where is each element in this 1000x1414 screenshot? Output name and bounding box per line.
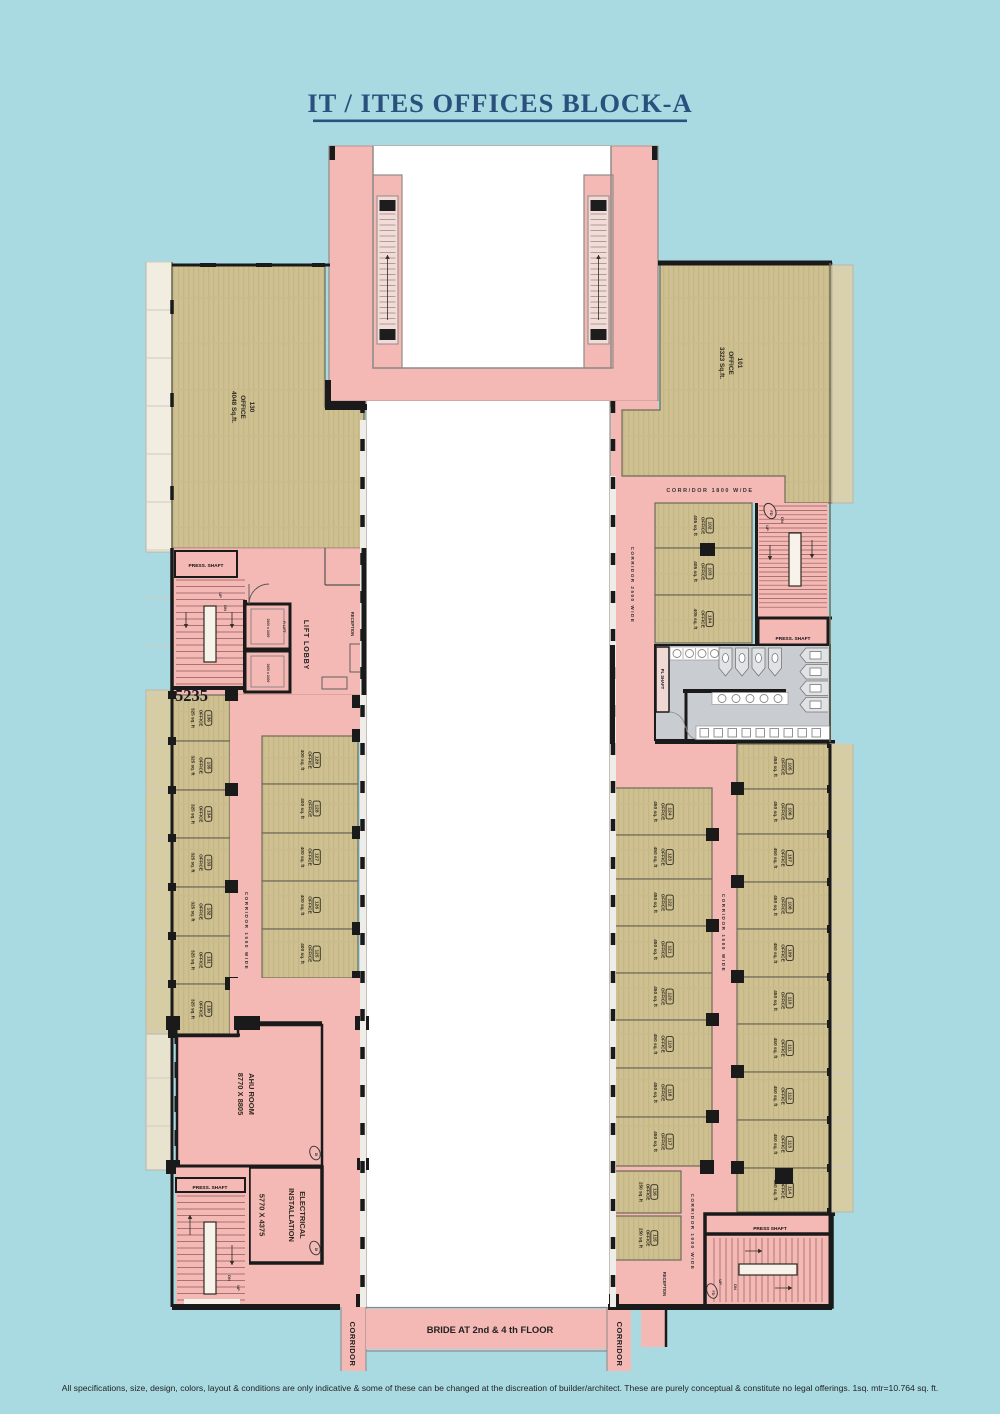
svg-text:OFFICE: OFFICE	[779, 803, 785, 821]
svg-text:405 sq. ft: 405 sq. ft	[692, 609, 698, 630]
svg-text:133: 133	[206, 859, 211, 867]
svg-text:OFFICE: OFFICE	[198, 854, 203, 871]
svg-text:450 sq. ft: 450 sq. ft	[652, 1131, 658, 1152]
svg-text:OFFICE: OFFICE	[198, 1001, 203, 1018]
svg-text:400 sq. ft: 400 sq. ft	[299, 750, 305, 771]
svg-text:450 sq. ft: 450 sq. ft	[652, 847, 658, 868]
svg-text:UP: UP	[218, 592, 223, 598]
svg-text:All specifications, size, desi: All specifications, size, design, colors…	[62, 1383, 939, 1393]
svg-text:135: 135	[206, 762, 211, 770]
svg-text:104: 104	[707, 615, 713, 623]
svg-text:450 sq. ft: 450 sq. ft	[772, 895, 778, 916]
svg-text:OFFICE: OFFICE	[198, 952, 203, 969]
svg-text:130: 130	[248, 402, 255, 413]
svg-text:450 sq. ft: 450 sq. ft	[652, 892, 658, 913]
svg-text:2400 x 2400: 2400 x 2400	[266, 664, 270, 683]
svg-text:OFFICE: OFFICE	[659, 848, 665, 866]
svg-text:450 sq. ft: 450 sq. ft	[652, 939, 658, 960]
svg-text:OFFICE: OFFICE	[306, 896, 312, 914]
svg-text:LIFT LOBBY: LIFT LOBBY	[302, 620, 311, 670]
svg-text:250 sq. ft: 250 sq. ft	[638, 1182, 643, 1202]
svg-text:111: 111	[787, 1044, 793, 1052]
svg-text:129: 129	[314, 756, 320, 764]
svg-text:131: 131	[206, 956, 211, 964]
svg-text:CORRIDOR 1500 WIDE: CORRIDOR 1500 WIDE	[244, 892, 249, 971]
svg-text:OFFICE: OFFICE	[239, 395, 246, 419]
svg-text:DN: DN	[733, 1284, 738, 1290]
svg-text:PRESS. SHAFT: PRESS. SHAFT	[193, 1185, 228, 1191]
svg-text:8770 X 8805: 8770 X 8805	[236, 1073, 245, 1116]
svg-text:OFFICE: OFFICE	[659, 803, 665, 821]
svg-text:105: 105	[787, 762, 793, 770]
svg-text:OFFICE: OFFICE	[659, 1133, 665, 1151]
svg-text:450 sq. ft: 450 sq. ft	[772, 1134, 778, 1155]
svg-text:112: 112	[787, 1092, 793, 1100]
svg-text:AHU ROOM: AHU ROOM	[247, 1073, 256, 1115]
svg-text:450 sq. ft: 450 sq. ft	[772, 943, 778, 964]
svg-text:CORR/DOR 1800 W/DE: CORR/DOR 1800 W/DE	[666, 488, 753, 494]
svg-text:CORRIDOR 1000 WIDE: CORRIDOR 1000 WIDE	[690, 1194, 695, 1271]
svg-text:IT / ITES OFFICES BLOCK-A: IT / ITES OFFICES BLOCK-A	[307, 88, 692, 118]
svg-text:FD: FD	[711, 1290, 715, 1295]
svg-text:OFFICE: OFFICE	[659, 988, 665, 1006]
svg-text:116: 116	[652, 1188, 657, 1196]
svg-text:400 sq. ft: 400 sq. ft	[299, 798, 305, 819]
svg-text:OFFICE: OFFICE	[779, 1135, 785, 1153]
svg-text:OFFICE: OFFICE	[699, 517, 705, 535]
svg-text:114: 114	[787, 1186, 793, 1194]
svg-text:OFFICE: OFFICE	[659, 894, 665, 912]
svg-text:OFFICE: OFFICE	[659, 1035, 665, 1053]
svg-text:128: 128	[314, 804, 320, 812]
svg-text:103: 103	[707, 567, 713, 575]
svg-text:CORRIDOR: CORRIDOR	[348, 1322, 357, 1367]
svg-text:BRIDE AT 2nd & 4 th FLOOR: BRIDE AT 2nd & 4 th FLOOR	[427, 1324, 554, 1335]
svg-text:OFFICE: OFFICE	[779, 992, 785, 1010]
svg-text:325 sq. ft: 325 sq. ft	[190, 804, 195, 824]
svg-text:118: 118	[667, 1089, 673, 1097]
svg-text:115: 115	[652, 1234, 657, 1242]
svg-text:134: 134	[206, 810, 211, 818]
svg-text:120: 120	[667, 992, 673, 1000]
svg-text:450 sq. ft: 450 sq. ft	[772, 848, 778, 869]
svg-text:101: 101	[736, 358, 743, 369]
svg-text:OFFICE: OFFICE	[659, 941, 665, 959]
svg-text:125: 125	[314, 949, 320, 957]
svg-text:119: 119	[667, 1040, 673, 1048]
svg-text:325 sq. ft: 325 sq. ft	[190, 999, 195, 1019]
svg-text:CORRIDOR 1500 WIDE: CORRIDOR 1500 WIDE	[721, 894, 726, 973]
svg-text:450 sq. ft: 450 sq. ft	[652, 986, 658, 1007]
svg-text:OFFICE: OFFICE	[198, 903, 203, 920]
svg-text:5235: 5235	[175, 686, 208, 705]
svg-text:OFFICE: OFFICE	[779, 849, 785, 867]
svg-text:OFFICE: OFFICE	[699, 563, 705, 581]
svg-text:127: 127	[314, 853, 320, 861]
svg-text:OFFICE: OFFICE	[645, 1230, 650, 1247]
svg-text:450 sq. ft: 450 sq. ft	[772, 1086, 778, 1107]
svg-text:325 sq. ft: 325 sq. ft	[190, 950, 195, 970]
svg-text:OFFICE: OFFICE	[198, 806, 203, 823]
svg-text:109: 109	[787, 949, 793, 957]
svg-text:325 sq. ft: 325 sq. ft	[190, 902, 195, 922]
svg-text:136: 136	[206, 714, 211, 722]
svg-text:OFFICE: OFFICE	[699, 610, 705, 628]
svg-text:122: 122	[667, 898, 673, 906]
svg-text:450 sq. ft: 450 sq. ft	[772, 756, 778, 777]
svg-text:108: 108	[787, 901, 793, 909]
svg-text:400 sq. ft: 400 sq. ft	[299, 943, 305, 964]
svg-text:325 sq. ft: 325 sq. ft	[190, 708, 195, 728]
svg-text:DN: DN	[223, 605, 228, 611]
svg-text:325 sq. ft: 325 sq. ft	[190, 853, 195, 873]
svg-text:OFFICE: OFFICE	[198, 757, 203, 774]
svg-text:PL SHAFT: PL SHAFT	[660, 669, 665, 690]
svg-text:DN: DN	[780, 517, 785, 523]
svg-text:OFFICE: OFFICE	[645, 1184, 650, 1201]
svg-text:121: 121	[667, 945, 673, 953]
svg-text:130: 130	[206, 1005, 211, 1013]
svg-text:110: 110	[787, 997, 793, 1005]
svg-text:106: 106	[787, 807, 793, 815]
svg-text:450 sq. ft: 450 sq. ft	[652, 1034, 658, 1055]
svg-text:450 sq. ft: 450 sq. ft	[772, 801, 778, 822]
svg-text:PRESS. SHAFT: PRESS. SHAFT	[776, 636, 811, 642]
svg-text:P. LIFT: P. LIFT	[282, 621, 286, 633]
svg-text:RECEPTION: RECEPTION	[662, 1272, 667, 1296]
svg-text:OFFICE: OFFICE	[779, 897, 785, 915]
svg-text:ELECTRICAL: ELECTRICAL	[298, 1191, 307, 1239]
svg-text:UP: UP	[765, 525, 770, 531]
svg-text:400 sq. ft: 400 sq. ft	[299, 847, 305, 868]
svg-text:OFFICE: OFFICE	[779, 1039, 785, 1057]
svg-text:2400 x 2400: 2400 x 2400	[266, 619, 270, 638]
svg-text:124: 124	[667, 807, 673, 815]
svg-text:102: 102	[707, 521, 713, 529]
svg-text:132: 132	[206, 908, 211, 916]
svg-text:RECEPTION: RECEPTION	[350, 612, 355, 636]
svg-text:450 sq. ft: 450 sq. ft	[772, 990, 778, 1011]
svg-text:OFFICE: OFFICE	[727, 351, 734, 375]
svg-text:4048 Sq.ft.: 4048 Sq.ft.	[230, 391, 237, 423]
svg-text:OFFICE: OFFICE	[779, 944, 785, 962]
svg-text:OFFICE: OFFICE	[659, 1084, 665, 1102]
svg-text:405 sq. ft: 405 sq. ft	[692, 515, 698, 536]
svg-text:250 sq. ft: 250 sq. ft	[638, 1228, 643, 1248]
svg-text:FD: FD	[769, 510, 774, 515]
svg-text:117: 117	[667, 1138, 673, 1146]
svg-text:126: 126	[314, 901, 320, 909]
svg-text:450 sq. ft: 450 sq. ft	[652, 801, 658, 822]
svg-text:107: 107	[787, 854, 793, 862]
svg-text:5770 X 4375: 5770 X 4375	[257, 1194, 266, 1237]
svg-text:3323 Sq.ft.: 3323 Sq.ft.	[718, 347, 725, 379]
svg-text:123: 123	[667, 853, 673, 861]
svg-text:405 sq. ft: 405 sq. ft	[692, 561, 698, 582]
svg-text:CORRIDOR: CORRIDOR	[615, 1322, 624, 1367]
svg-text:CORRIDOR 2500 WIDE: CORRIDOR 2500 WIDE	[630, 547, 635, 624]
svg-text:OFFICE: OFFICE	[306, 848, 312, 866]
svg-text:OFFICE: OFFICE	[779, 1087, 785, 1105]
svg-text:OFFICE: OFFICE	[198, 710, 203, 727]
svg-text:OFFICE: OFFICE	[306, 751, 312, 769]
svg-text:450 sq. ft: 450 sq. ft	[772, 1038, 778, 1059]
svg-text:DI: DI	[314, 1153, 318, 1157]
svg-text:PRESS. SHAFT: PRESS. SHAFT	[189, 563, 224, 569]
svg-text:325 sq. ft: 325 sq. ft	[190, 756, 195, 776]
svg-text:DN: DN	[227, 1275, 232, 1281]
svg-text:UP: UP	[236, 1285, 241, 1291]
svg-text:OFFICE: OFFICE	[306, 945, 312, 963]
svg-text:PRESS SHAFT: PRESS SHAFT	[753, 1226, 787, 1232]
svg-text:DI: DI	[314, 1248, 318, 1252]
svg-text:OFFICE: OFFICE	[779, 758, 785, 776]
svg-text:INSTALLATION: INSTALLATION	[287, 1188, 296, 1242]
svg-text:UP: UP	[718, 1279, 723, 1285]
svg-text:400 sq. ft: 400 sq. ft	[299, 895, 305, 916]
svg-text:450 sq. ft: 450 sq. ft	[652, 1082, 658, 1103]
svg-text:OFFICE: OFFICE	[306, 800, 312, 818]
svg-text:113: 113	[787, 1140, 793, 1148]
